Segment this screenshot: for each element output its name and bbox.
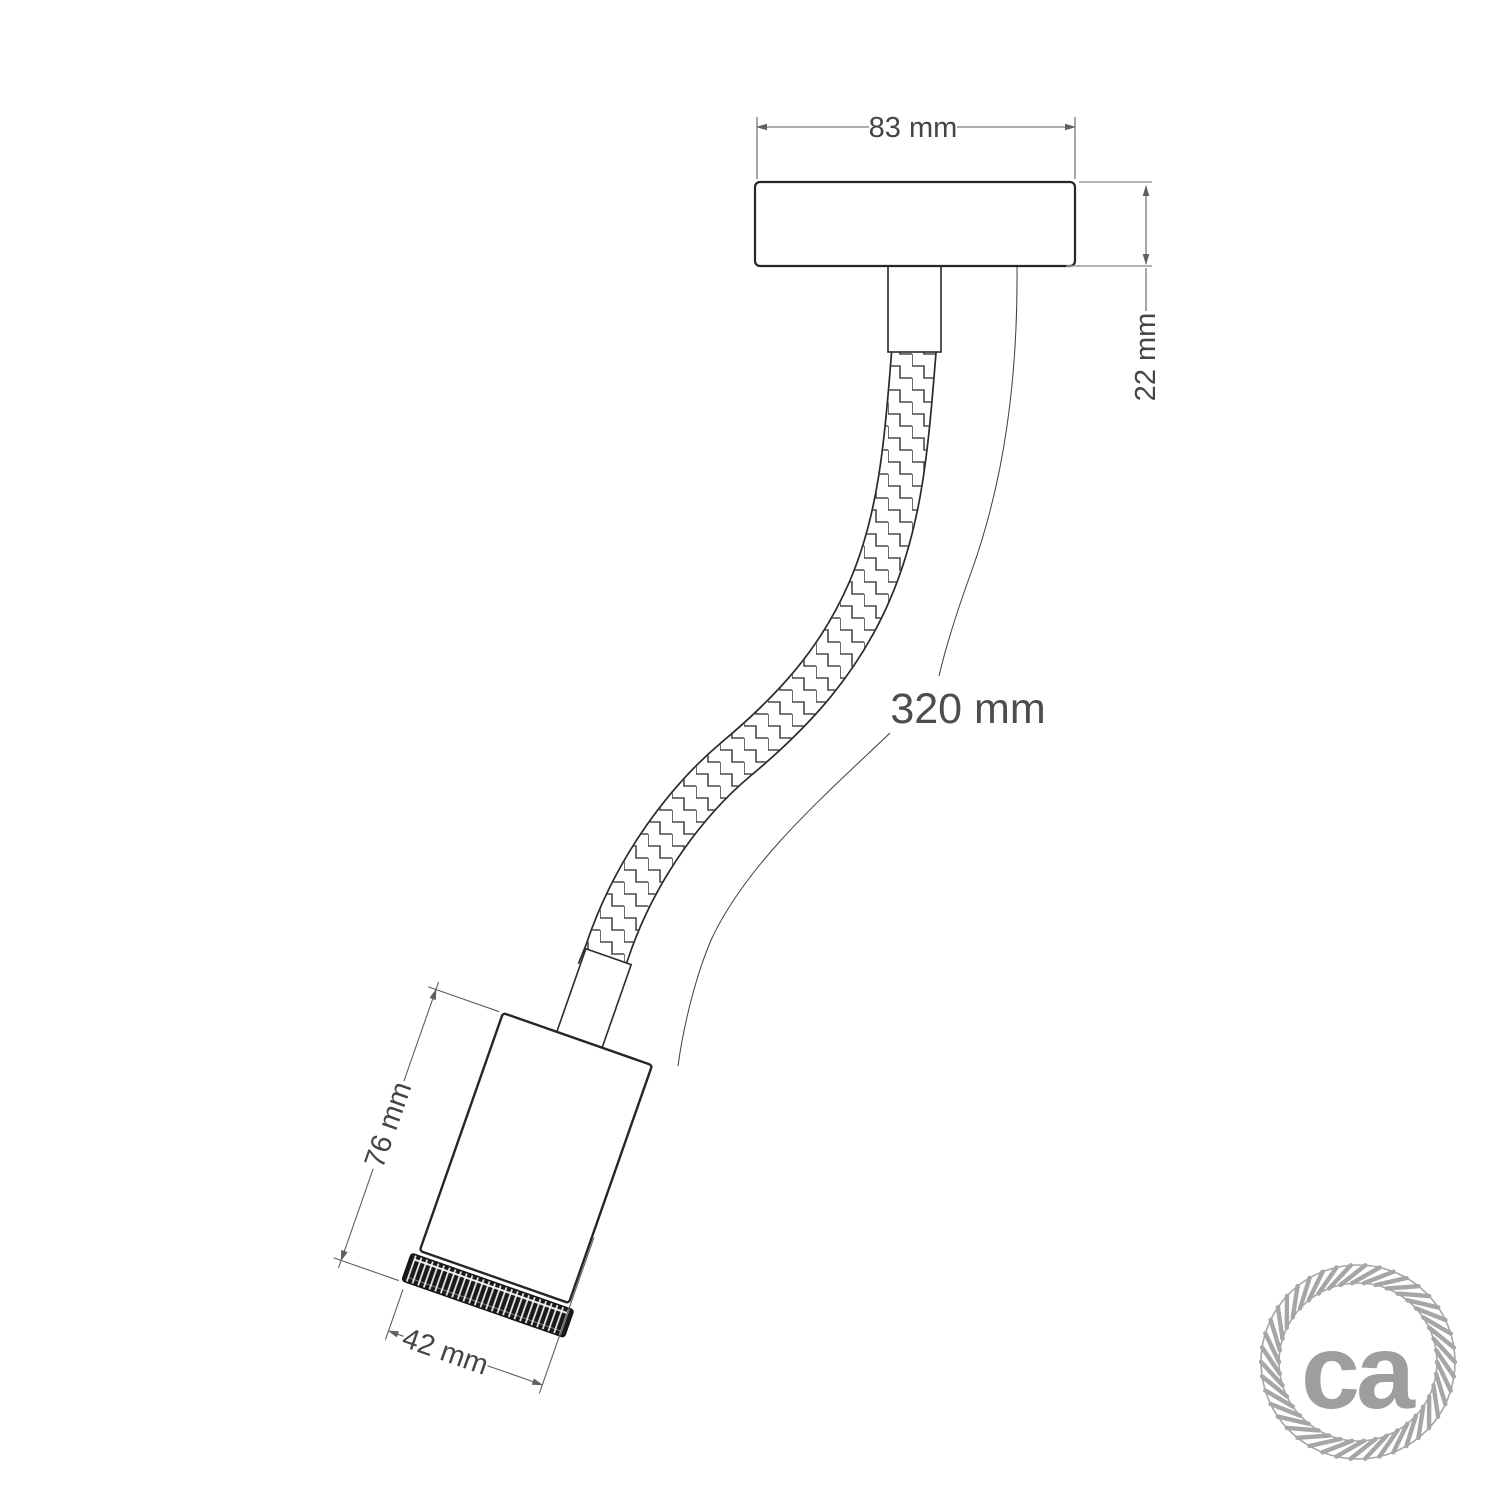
logo-rope-strand xyxy=(1297,1436,1329,1438)
holder-height-extension-top xyxy=(428,987,499,1012)
holder-diameter-label: 42 mm xyxy=(398,1322,492,1381)
holder-height-extension-bottom xyxy=(334,1258,399,1281)
canopy-width-arrow-right xyxy=(1065,124,1076,131)
canopy-width-label: 83 mm xyxy=(869,112,958,144)
logo-wordmark: ca xyxy=(1301,1313,1416,1431)
holder-body xyxy=(420,1013,652,1303)
brand-logo: ca xyxy=(1261,1265,1455,1459)
technical-drawing-page: 320 mm 83 mm 22 mm xyxy=(0,0,1500,1500)
flex-conduit xyxy=(599,350,914,972)
canopy-width-arrow-left xyxy=(756,124,767,131)
flex-conduit-weave xyxy=(599,350,914,972)
holder-stem xyxy=(557,949,631,1048)
dimension-canopy-height: 22 mm xyxy=(1066,182,1162,401)
logo-rope-strand xyxy=(1387,1286,1419,1288)
logo-rope-strand xyxy=(1278,1307,1283,1338)
dimension-flex-length: 320 mm xyxy=(678,266,1046,1066)
holder-height-label: 76 mm xyxy=(359,1078,418,1172)
spotlight-dimension-drawing: 320 mm 83 mm 22 mm xyxy=(0,0,1500,1500)
canopy-body xyxy=(755,182,1075,266)
canopy-height-arrow-bottom xyxy=(1143,254,1150,265)
dimension-canopy-width: 83 mm xyxy=(756,112,1076,179)
lamp-holder: 76 mm 42 mm xyxy=(304,901,688,1402)
flex-length-label: 320 mm xyxy=(890,685,1045,733)
ceiling-canopy xyxy=(755,182,1075,352)
flex-length-leader-upper xyxy=(939,266,1017,676)
canopy-height-label: 22 mm xyxy=(1130,313,1162,402)
canopy-height-arrow-top xyxy=(1143,185,1150,196)
canopy-stem xyxy=(888,266,941,352)
logo-rope-strand xyxy=(1433,1385,1438,1416)
